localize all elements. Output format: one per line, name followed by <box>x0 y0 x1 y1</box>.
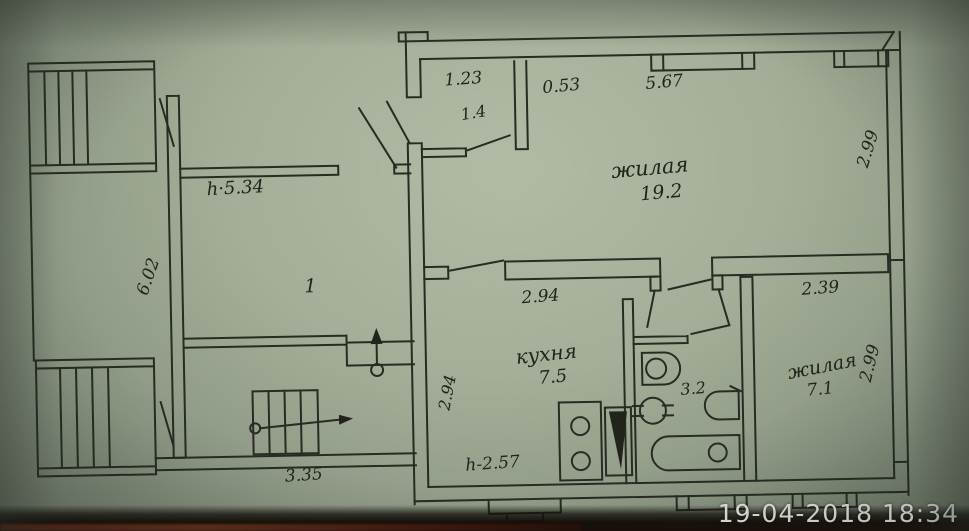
vestibule-door-swing <box>468 135 510 150</box>
wall-239 <box>712 254 888 275</box>
room-kitchen-area: 7.5 <box>538 365 568 388</box>
hall-left-wall <box>167 96 186 458</box>
door-swing-hall-top <box>359 108 396 169</box>
camera-timestamp: 19-04-2018 18:34 <box>718 499 959 528</box>
dim-hall-depth-label: 6.02 <box>133 256 164 298</box>
stove-burner-1 <box>571 417 589 435</box>
bathroom-door-swing <box>691 325 729 334</box>
dim-kitchen-wall-label: 2.94 <box>520 286 560 309</box>
room-hall-number: 1 <box>304 275 317 297</box>
stove-burner-2 <box>572 452 590 470</box>
sink-taps <box>633 405 673 416</box>
wall-stub-left <box>424 267 448 279</box>
toilet-bowl <box>646 358 666 378</box>
door-pier-left <box>650 277 660 291</box>
dim-room-wall-label: 2.39 <box>800 277 840 300</box>
staircase-bottom-left-icon <box>36 358 156 476</box>
apartment-bottom-wall <box>414 478 908 501</box>
kitchen-stove-icon <box>559 402 602 481</box>
dim-entry-width-label: 1.23 <box>444 68 483 91</box>
hall-door-swing-left <box>647 291 656 327</box>
dim-top-small-label: 0.53 <box>542 75 581 98</box>
entry-door-swing <box>387 101 410 143</box>
room-living-main-label: жилая <box>610 152 689 183</box>
bathtub-drain <box>709 443 727 461</box>
dim-stair-width-label: 3.35 <box>284 464 323 487</box>
floorplan-drawing: 1.23 0.53 5.67 1.4 жилая 19.2 2.99 h·5.3… <box>0 0 969 531</box>
dim-right-upper-label: 2.99 <box>853 128 883 171</box>
window-bottom-1 <box>489 498 561 521</box>
bathroom-left-wall <box>623 299 637 483</box>
hall-door-leaf <box>668 280 710 290</box>
bathroom-top-partition <box>634 336 688 344</box>
stair-arrow-right-icon <box>339 414 353 424</box>
bathroom-right-wall <box>740 277 756 481</box>
apartment-top-wall <box>399 23 894 59</box>
hall-top-wall <box>180 164 410 177</box>
dim-ceiling-height-label: h-2.57 <box>465 452 521 476</box>
dim-right-lower-label: 2.99 <box>856 342 885 385</box>
stair-direction-start <box>250 423 260 433</box>
stair-direction-line <box>260 420 339 429</box>
dim-entry-depth-label: 1.4 <box>459 101 487 124</box>
door-pier-right <box>712 275 722 289</box>
dim-kitchen-depth-label: 2.94 <box>434 373 460 413</box>
kitchen-door-swing <box>450 261 503 271</box>
outer-left-wall <box>30 174 34 361</box>
toilet-icon <box>642 352 681 385</box>
wall-294 <box>505 259 660 280</box>
room-bathroom-area: 3.2 <box>680 378 707 399</box>
dim-facade-top-label: 5.67 <box>645 71 685 94</box>
room-living-small-area: 7.1 <box>806 378 835 401</box>
door-swing-bottom-left <box>161 402 174 446</box>
staircase-top-left-icon <box>28 61 156 173</box>
room-kitchen-label: кухня <box>514 339 577 369</box>
stair-arrow-up-icon <box>370 328 382 344</box>
hall-door-swing-right <box>719 289 730 325</box>
floorplan-photo: 1.23 0.53 5.67 1.4 жилая 19.2 2.99 h·5.3… <box>0 0 969 531</box>
bidet-icon <box>704 386 741 420</box>
apartment-left-wall <box>406 32 429 504</box>
dim-hall-width-label: h·5.34 <box>206 176 264 200</box>
sink-icon <box>640 397 666 423</box>
window-top-2 <box>834 50 888 67</box>
window-top-1 <box>651 53 754 71</box>
room-living-main-area: 19.2 <box>639 180 683 206</box>
